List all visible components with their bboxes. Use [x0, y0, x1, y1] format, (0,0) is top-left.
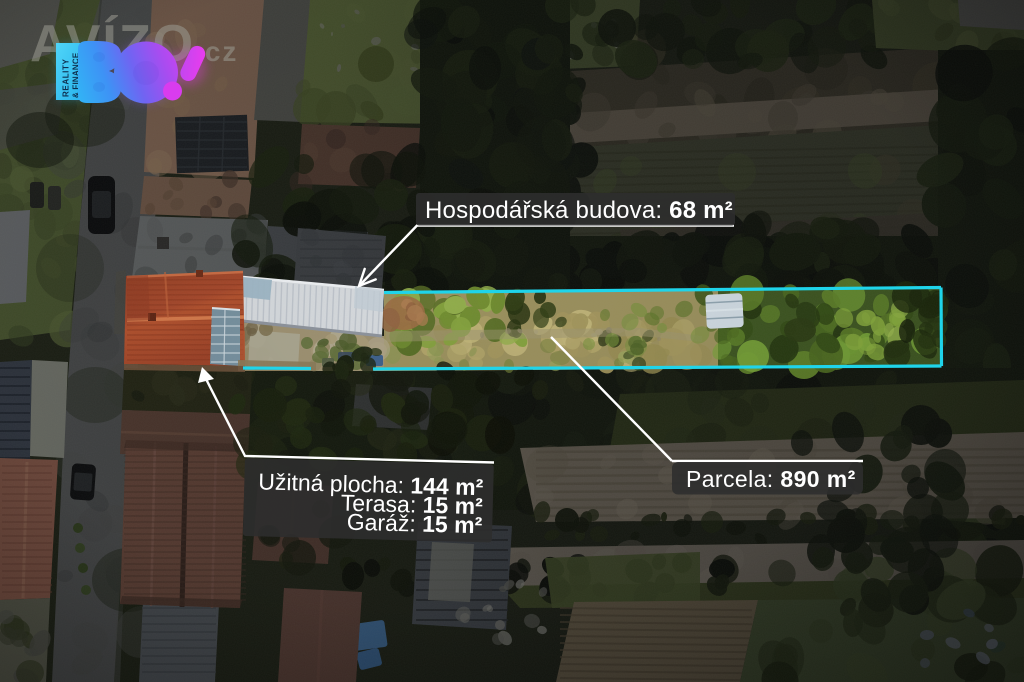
svg-text:Garáž: 15 m²: Garáž: 15 m²	[346, 509, 482, 539]
svg-text:REALITY: REALITY	[62, 59, 71, 97]
svg-text:Hospodářská budova: 68 m²: Hospodářská budova: 68 m²	[425, 197, 733, 224]
svg-text:Parcela: 890 m²: Parcela: 890 m²	[686, 466, 856, 492]
